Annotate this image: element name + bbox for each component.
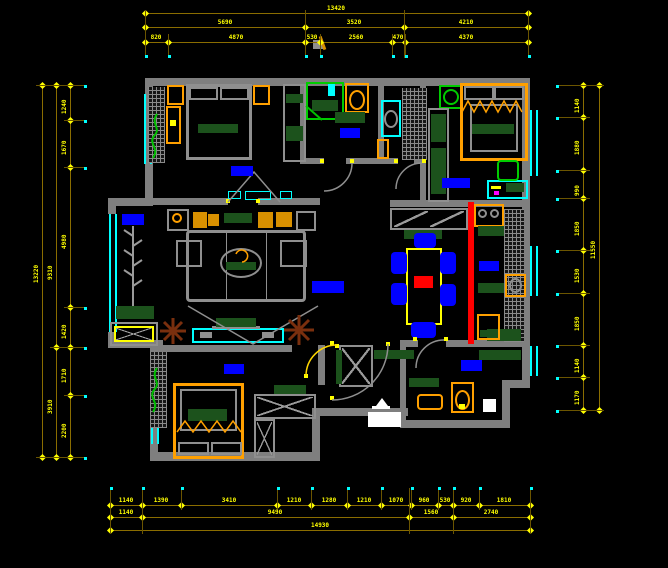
door-hinge <box>422 159 426 163</box>
bedroom3-feature-wall <box>150 352 167 428</box>
window-bedroom2 <box>530 110 532 176</box>
extension-line <box>528 10 529 58</box>
extension-line <box>64 307 84 308</box>
dining-chair-left <box>391 252 407 274</box>
bedroom1-console <box>228 191 241 199</box>
dim-label: 1140 <box>115 509 137 517</box>
bedroom3-drawer <box>211 442 242 455</box>
bedroom3-shelf <box>274 385 306 394</box>
bedroom3-wardrobe-cross <box>257 422 272 455</box>
dim-label: 2200 <box>61 414 69 438</box>
extension-dot <box>556 377 559 380</box>
extension-dot <box>320 55 323 58</box>
extension-line <box>530 488 531 534</box>
room-label-bedroom-3 <box>224 364 244 374</box>
window-bay <box>109 214 111 332</box>
door-arc-bath1 <box>324 163 352 191</box>
dim-label: 530 <box>301 34 323 42</box>
dim-label: 1390 <box>150 497 172 505</box>
dim-label: 14930 <box>309 522 331 530</box>
dim-label: 1070 <box>385 497 407 505</box>
extension-dot <box>110 487 113 490</box>
dim-label: 920 <box>455 497 477 505</box>
extension-dot <box>181 487 184 490</box>
dim-label: 1850 <box>574 212 582 236</box>
dim-label: 820 <box>145 34 167 42</box>
extension-dot <box>84 85 87 88</box>
dining-chair-right <box>440 252 456 274</box>
dim-label: 5690 <box>214 19 236 27</box>
door-arc-bedroom2 <box>396 163 422 189</box>
plant-burst-left <box>160 318 186 344</box>
dim-label: 3910 <box>47 390 55 414</box>
dim-label: 1420 <box>61 315 69 339</box>
dim-label: 3410 <box>218 497 240 505</box>
window-bedroom2 <box>536 110 538 176</box>
dim-line <box>145 13 528 14</box>
door-hinge <box>330 396 334 400</box>
extension-line <box>556 345 590 346</box>
side-table-right <box>296 211 316 231</box>
room-label-bay-window <box>122 214 144 225</box>
extension-line <box>409 488 410 534</box>
extension-dot <box>528 55 531 58</box>
bedroom2-blanket <box>472 124 514 134</box>
extension-dot <box>84 120 87 123</box>
extension-line <box>64 167 84 168</box>
door-hinge <box>444 337 448 341</box>
kitchen-shelf <box>478 226 504 236</box>
door-hinge <box>320 159 324 163</box>
dim-line <box>56 85 57 457</box>
extension-dot <box>392 55 395 58</box>
burner <box>490 209 499 218</box>
dining-chair-bottom <box>411 322 436 338</box>
entry-label-block <box>368 412 401 427</box>
bathroom2-counter <box>479 350 521 360</box>
extension-line <box>381 488 382 510</box>
dim-label: 470 <box>387 34 409 42</box>
extension-line <box>556 410 604 411</box>
dim-line <box>145 27 528 28</box>
dim-label: 1880 <box>574 131 582 155</box>
extension-dot <box>556 293 559 296</box>
dim-label: 1560 <box>420 509 442 517</box>
extension-dot <box>556 117 559 120</box>
bathroom2-basin <box>417 394 443 410</box>
bedroom1-nightstand-left <box>167 85 184 105</box>
wall-right-step-v <box>502 380 510 428</box>
extension-line <box>556 250 590 251</box>
wall-dining-top <box>390 200 526 207</box>
floor-drain <box>483 399 496 412</box>
bathroom2-counter <box>409 378 439 387</box>
shoe-cabinet-cross <box>342 348 370 384</box>
extension-line <box>556 85 604 86</box>
extension-line <box>36 457 84 458</box>
dim-label: 11550 <box>590 235 598 259</box>
extension-dot <box>556 345 559 348</box>
extension-dot <box>305 55 308 58</box>
extension-line <box>50 347 84 348</box>
extension-dot <box>311 487 314 490</box>
window-bathroom2 <box>530 346 532 376</box>
dim-label: 4980 <box>61 225 69 249</box>
extension-line <box>110 488 111 534</box>
extension-line <box>181 488 182 510</box>
tv-cabinet-item <box>262 332 274 338</box>
tv-cabinet-item <box>200 332 212 338</box>
dim-label: 2740 <box>480 509 502 517</box>
burner <box>478 209 487 218</box>
sofa-cushion <box>224 213 252 223</box>
bay-bench <box>116 306 154 319</box>
armchair-right <box>280 240 307 267</box>
dim-line <box>42 85 43 457</box>
extension-line <box>453 488 454 534</box>
extension-dot <box>277 487 280 490</box>
dim-label: 1140 <box>115 497 137 505</box>
room-label-kitchen <box>479 261 499 271</box>
dim-line <box>145 42 528 43</box>
sideboard-door <box>430 211 464 227</box>
desk-item <box>506 183 524 192</box>
toilet-2-detail <box>459 404 465 409</box>
dim-label: 13220 <box>33 259 41 283</box>
dim-label: 1240 <box>61 90 69 114</box>
door-hinge <box>226 199 230 203</box>
entry-arrow-base <box>372 406 390 409</box>
extension-dot <box>556 170 559 173</box>
wall-living-top-a <box>108 198 228 205</box>
desk-item <box>491 186 501 189</box>
dim-label: 1210 <box>353 497 375 505</box>
door-hinge <box>304 374 308 378</box>
bedroom1-dresser-knob <box>170 120 176 126</box>
bedroom1-pillow-right <box>220 87 249 100</box>
window-bathroom2 <box>536 346 538 376</box>
extension-dot <box>556 85 559 88</box>
dim-label: 1670 <box>61 131 69 155</box>
dim-label: 1140 <box>574 349 582 373</box>
dining-table-runner <box>414 276 433 288</box>
dim-label: 4210 <box>455 19 477 27</box>
bay-coat-rack <box>124 226 142 306</box>
vanity-basin <box>384 110 398 128</box>
dim-label: 1210 <box>283 497 305 505</box>
bedroom3-blanket <box>188 409 227 421</box>
dim-label: 990 <box>574 172 582 196</box>
stove-shelf <box>480 330 497 337</box>
window-bedroom1 <box>144 94 146 164</box>
extension-line <box>142 488 143 534</box>
dim-label: 4870 <box>225 34 247 42</box>
extension-dot <box>142 487 145 490</box>
dining-chair-left <box>391 283 407 305</box>
sideboard-door <box>394 211 428 227</box>
extension-dot <box>479 487 482 490</box>
room-label-bedroom-2 <box>442 178 470 188</box>
entry-bench <box>374 350 414 359</box>
dim-label: 1710 <box>61 359 69 383</box>
bedroom1-feature-wall <box>148 87 165 163</box>
dim-label: 1850 <box>574 307 582 331</box>
bedroom2-pillow-right <box>494 86 524 100</box>
dining-chair-right <box>440 284 456 306</box>
kitchen-shelf <box>478 283 504 293</box>
ceiling-fan-blades <box>443 89 459 105</box>
corner-cabinet-cross <box>116 328 152 340</box>
wall-entry-left <box>318 345 325 385</box>
door-hinge <box>335 344 339 348</box>
dim-label: 1140 <box>574 89 582 113</box>
dim-label: 960 <box>413 497 435 505</box>
extension-dot <box>556 250 559 253</box>
extension-dot <box>411 487 414 490</box>
window-kitchen <box>536 246 538 296</box>
bedroom1-nightstand-right <box>253 85 270 105</box>
dim-label: 2560 <box>345 34 367 42</box>
sink-basin <box>509 278 522 293</box>
wall-bath2-top-a <box>400 340 418 347</box>
toilet-1-bowl <box>349 90 365 110</box>
entry-arrow-icon <box>376 398 388 406</box>
extension-dot <box>84 395 87 398</box>
extension-dot <box>530 487 533 490</box>
extension-dot <box>347 487 350 490</box>
door-hinge <box>330 341 334 345</box>
extension-dot <box>453 487 456 490</box>
extension-line <box>411 488 412 510</box>
dim-label: 4370 <box>455 34 477 42</box>
wall-bath2-bottom <box>400 420 510 428</box>
door-hinge <box>413 337 417 341</box>
extension-dot <box>556 198 559 201</box>
sofa-pillow <box>258 212 273 228</box>
plant-burst-right <box>284 315 314 345</box>
dim-label: 1170 <box>574 381 582 405</box>
desk-item <box>494 191 499 195</box>
dim-label: 1530 <box>574 259 582 283</box>
shower-head <box>328 84 335 96</box>
extension-line <box>556 293 590 294</box>
dim-line <box>599 85 600 410</box>
armchair-left <box>176 240 202 267</box>
bedroom2-wardrobe-shelf <box>431 114 446 142</box>
dim-label: 13420 <box>325 5 347 13</box>
entry-shelf <box>336 350 342 384</box>
window-kitchen <box>530 246 532 296</box>
extension-line <box>36 85 84 86</box>
extension-dot <box>145 55 148 58</box>
dim-label: 3520 <box>343 19 365 27</box>
extension-line <box>556 170 590 171</box>
room-label-bedroom-1 <box>231 166 253 176</box>
extension-dot <box>438 487 441 490</box>
storage-shelving <box>402 88 427 160</box>
bedroom1-wardrobe-shelf <box>286 126 303 141</box>
dim-line <box>110 530 530 531</box>
door-hinge <box>394 159 398 163</box>
wall-bedroom3-top <box>158 345 292 352</box>
door-hinge <box>350 159 354 163</box>
bedroom1-console <box>280 191 292 199</box>
extension-line <box>277 488 278 510</box>
bedroom1-blanket <box>198 124 238 133</box>
extension-line <box>64 395 84 396</box>
extension-line <box>311 488 312 510</box>
bedroom1-wardrobe-shelf <box>286 94 303 103</box>
dim-line <box>110 505 530 506</box>
bedroom3-wardrobe-cross <box>257 397 313 416</box>
dim-line <box>110 517 530 518</box>
door-hinge <box>386 342 390 346</box>
extension-dot <box>84 307 87 310</box>
extension-line <box>347 488 348 510</box>
door-hinge <box>256 199 260 203</box>
extension-line <box>556 198 590 199</box>
dim-label: 1810 <box>493 497 515 505</box>
dining-chair-top <box>414 233 436 248</box>
extension-line <box>556 117 590 118</box>
floorplan-canvas: 1342056903520421082048705302560470437011… <box>0 0 668 568</box>
dim-line <box>70 85 71 457</box>
sofa-pillow <box>193 212 207 228</box>
extension-dot <box>168 55 171 58</box>
extension-dot <box>84 457 87 460</box>
bedroom3-drawer <box>178 442 209 455</box>
dim-label: 9310 <box>47 256 55 280</box>
extension-dot <box>84 347 87 350</box>
bedroom2-pillow-left <box>464 86 494 100</box>
door-arc-bath2 <box>416 340 444 368</box>
room-label-living-room <box>312 281 344 293</box>
sofa-pillow <box>276 212 292 227</box>
vanity-pedestal <box>377 139 389 159</box>
extension-dot <box>381 487 384 490</box>
room-label-bathroom-2 <box>461 360 482 371</box>
bathroom1-shelf <box>335 112 365 123</box>
extension-dot <box>405 55 408 58</box>
extension-line <box>64 120 84 121</box>
extension-line <box>556 377 590 378</box>
room-label-bathroom-1 <box>340 128 360 138</box>
extension-dot <box>84 167 87 170</box>
dim-label: 530 <box>434 497 456 505</box>
table-lamp <box>172 213 182 223</box>
extension-dot <box>556 410 559 413</box>
bedroom1-pillow-left <box>189 87 218 100</box>
coffee-table-decor <box>226 262 256 270</box>
desk-chair <box>497 160 519 181</box>
dim-label: 1280 <box>318 497 340 505</box>
sofa-division <box>266 232 267 300</box>
dim-label: 9490 <box>264 509 286 517</box>
sofa-pillow <box>208 214 219 226</box>
tv-screen <box>216 318 256 327</box>
bathroom1-shelf <box>312 100 338 111</box>
extension-line <box>479 488 480 510</box>
